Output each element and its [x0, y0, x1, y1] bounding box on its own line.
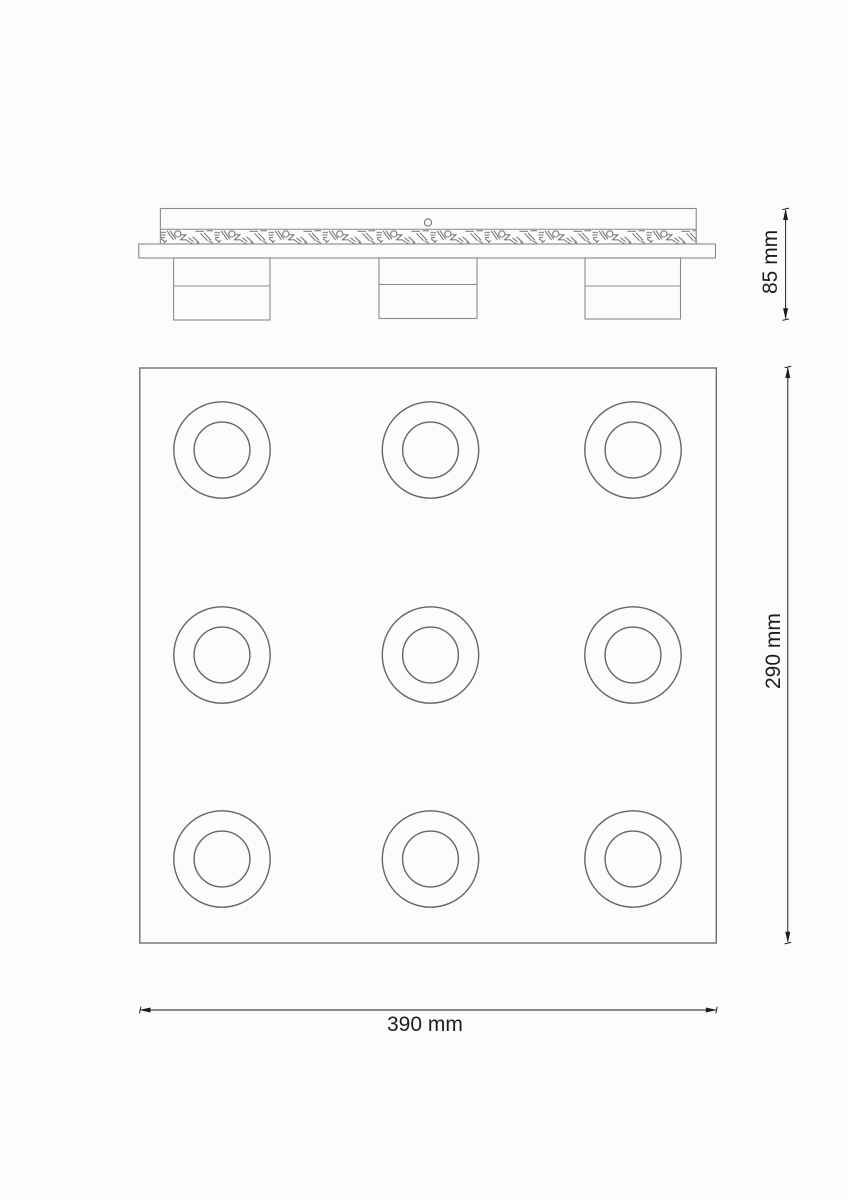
svg-text:85 mm: 85 mm: [759, 230, 782, 294]
svg-text:390 mm: 390 mm: [387, 1013, 463, 1036]
svg-text:290 mm: 290 mm: [762, 613, 785, 689]
